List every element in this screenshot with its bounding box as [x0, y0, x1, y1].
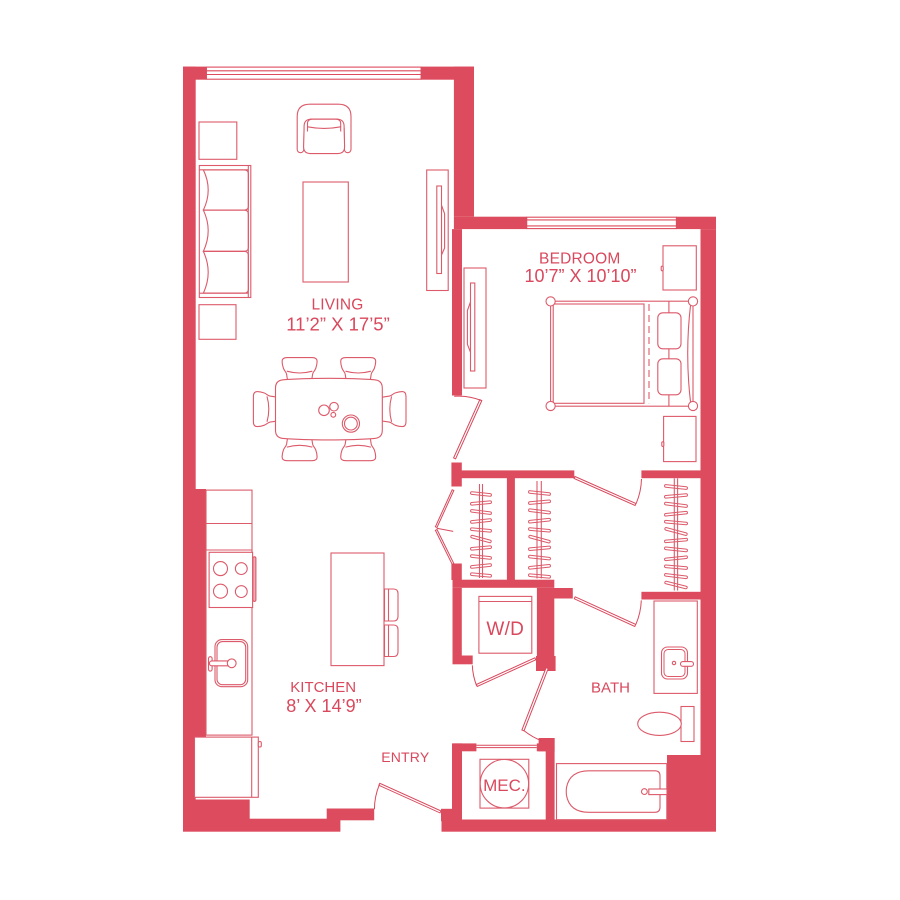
svg-text:8’ X 14’9”: 8’ X 14’9”: [286, 696, 361, 716]
svg-text:ENTRY: ENTRY: [381, 749, 430, 765]
svg-text:KITCHEN: KITCHEN: [290, 679, 356, 696]
svg-text:11’2” X 17’5”: 11’2” X 17’5”: [286, 314, 390, 335]
svg-text:W/D: W/D: [486, 619, 524, 640]
svg-text:BEDROOM: BEDROOM: [539, 250, 621, 267]
svg-text:10’7” X 10’10”: 10’7” X 10’10”: [524, 266, 636, 286]
svg-text:LIVING: LIVING: [311, 297, 363, 314]
svg-text:BATH: BATH: [591, 679, 630, 696]
svg-text:MEC.: MEC.: [483, 776, 526, 795]
